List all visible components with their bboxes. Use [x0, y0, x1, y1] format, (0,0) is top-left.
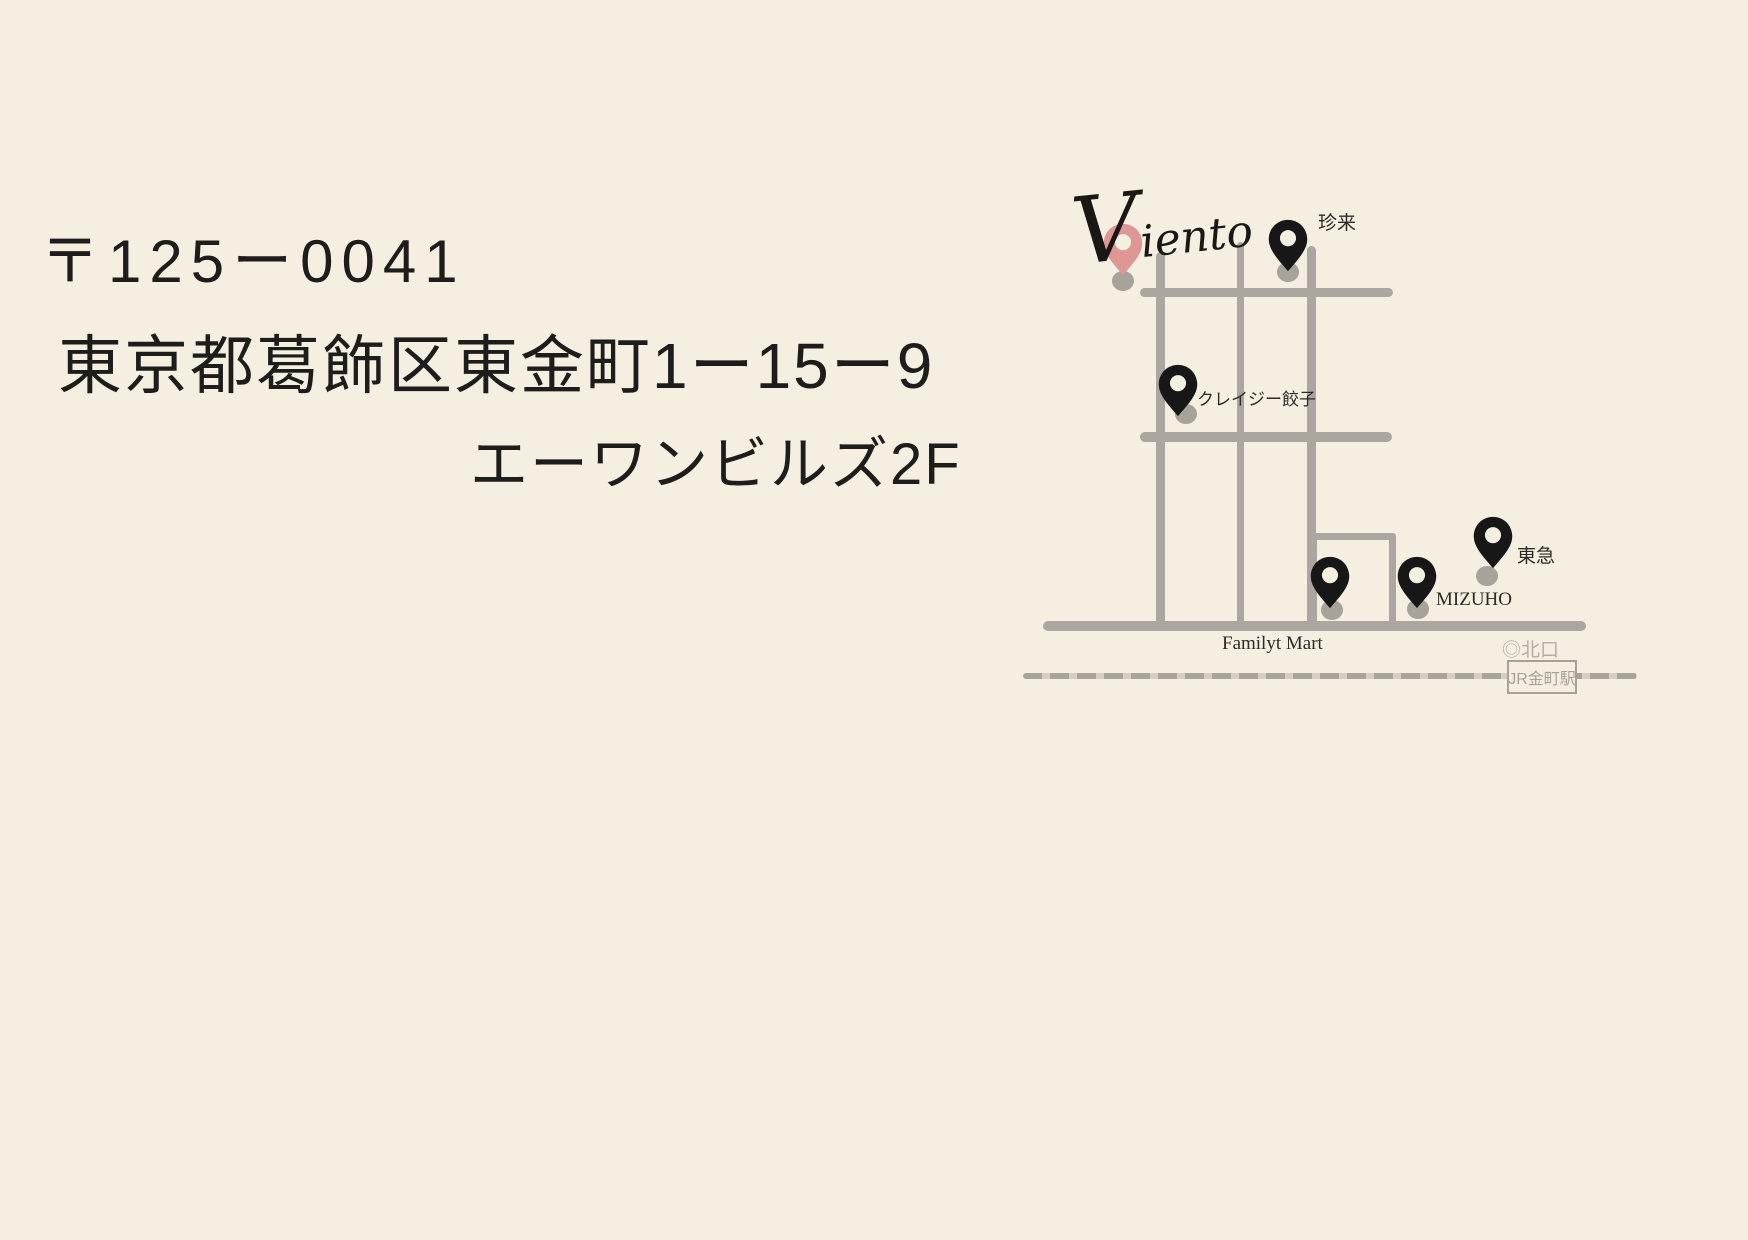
viento-logo: Viento [1067, 160, 1257, 286]
address-line-2: エーワンビルズ2F [470, 436, 962, 494]
map-pin-family-mart-icon [1308, 555, 1352, 610]
map-pin-mizuho-icon [1395, 555, 1439, 610]
road-horizontal-middle [1140, 432, 1392, 442]
address-postal-code: 〒125ー0041 [40, 232, 466, 292]
address-line-1: 東京都葛飾区東金町1ー15ー9 [58, 334, 934, 398]
north-exit-label: ◎北口 [1502, 635, 1559, 662]
map-pin-chinrai-icon [1266, 218, 1310, 273]
label-family-mart: Familyt Mart [1222, 634, 1323, 653]
label-chinrai: 珍来 [1318, 214, 1356, 233]
map-pin-tokyu-icon [1471, 515, 1515, 570]
map-pin-crazy-gyoza-icon [1156, 363, 1200, 418]
road-horizontal-top [1140, 288, 1393, 297]
label-tokyu: 東急 [1517, 547, 1555, 566]
label-mizuho: MIZUHO [1436, 590, 1512, 609]
access-map-flyer: 〒125ー0041 東京都葛飾区東金町1ー15ー9 エーワンビルズ2F ◎北口 … [0, 0, 1748, 1240]
label-crazy-gyoza: クレイジー餃子 [1197, 391, 1316, 408]
station-box: JR金町駅 [1507, 660, 1577, 694]
